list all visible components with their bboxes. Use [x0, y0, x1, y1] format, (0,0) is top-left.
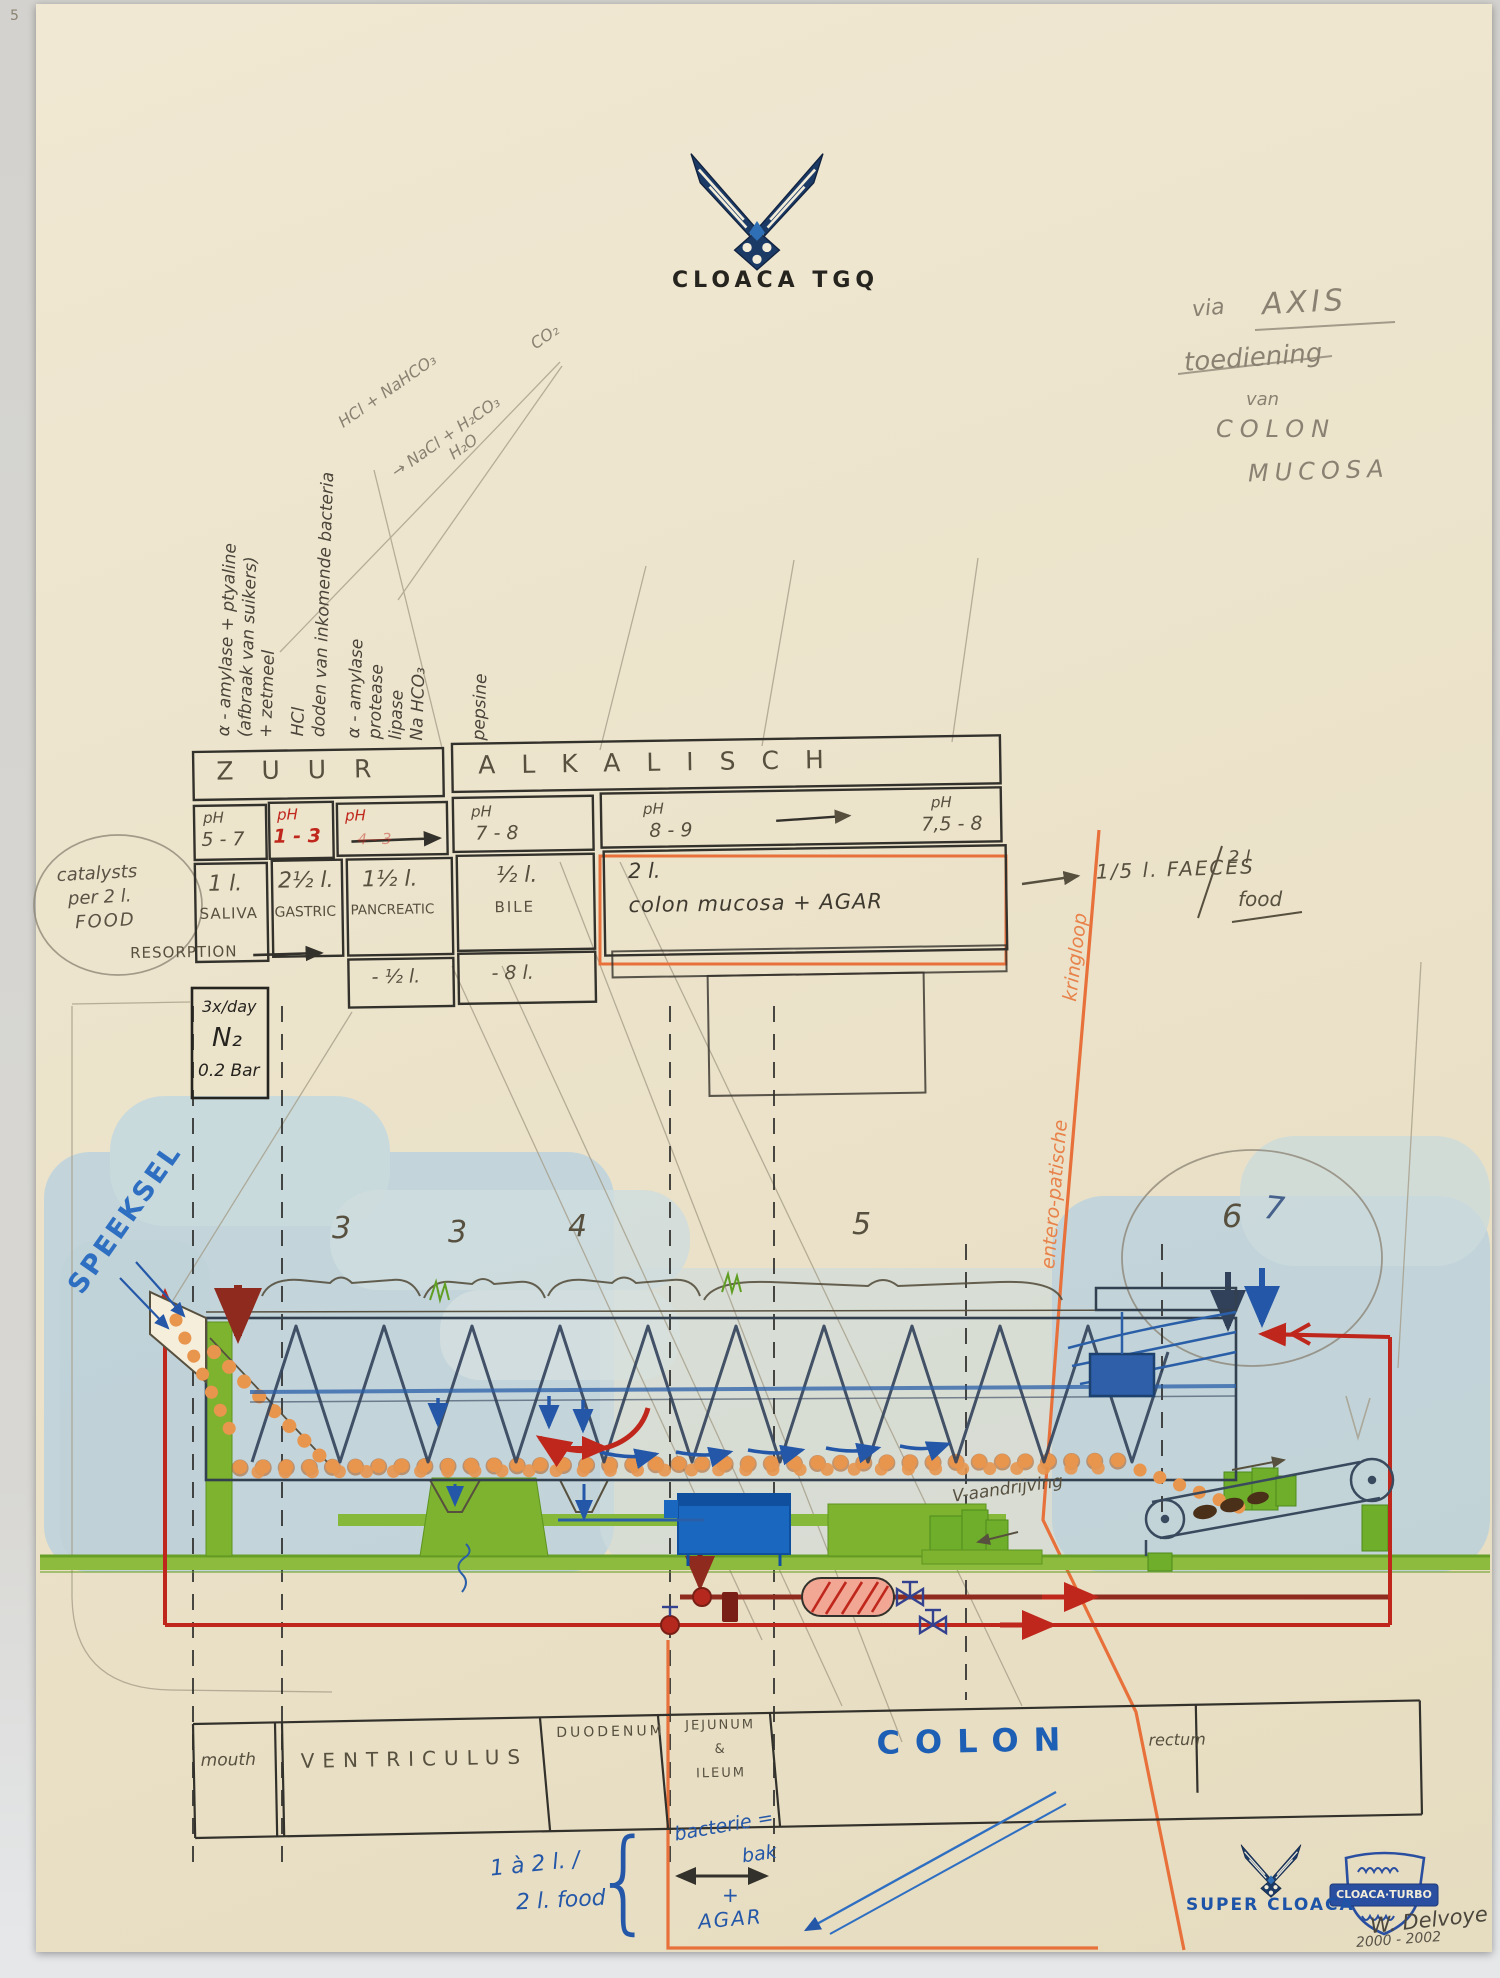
organ-colon: COLON [876, 1721, 1076, 1762]
agar-plus: + [722, 1884, 739, 1907]
organ-rectum: rectum [1148, 1731, 1206, 1750]
text-layer: 5 CLOACA TGQ via AXIS toediening van COL… [0, 0, 1500, 1978]
organ-duodenum: DUODENUM [556, 1723, 665, 1741]
organ-jejunum-ileum: JEJUNUM & ILEUM [672, 1713, 769, 1787]
cloaca-turbo-label: CLOACA·TURBO [1336, 1889, 1432, 1902]
intake-brace: { [594, 1817, 654, 1947]
organ-text-layer: mouth VENTRICULUS DUODENUM JEJUNUM & ILE… [0, 0, 1500, 1978]
super-cloaca-label: SUPER CLOACA [1186, 1896, 1355, 1916]
organ-ventriculus: VENTRICULUS [301, 1746, 529, 1773]
organ-mouth: mouth [201, 1751, 257, 1772]
scanned-drawing-photo: 5 CLOACA TGQ via AXIS toediening van COL… [0, 0, 1500, 1978]
intake-note-2: 2 l. food [515, 1886, 606, 1916]
